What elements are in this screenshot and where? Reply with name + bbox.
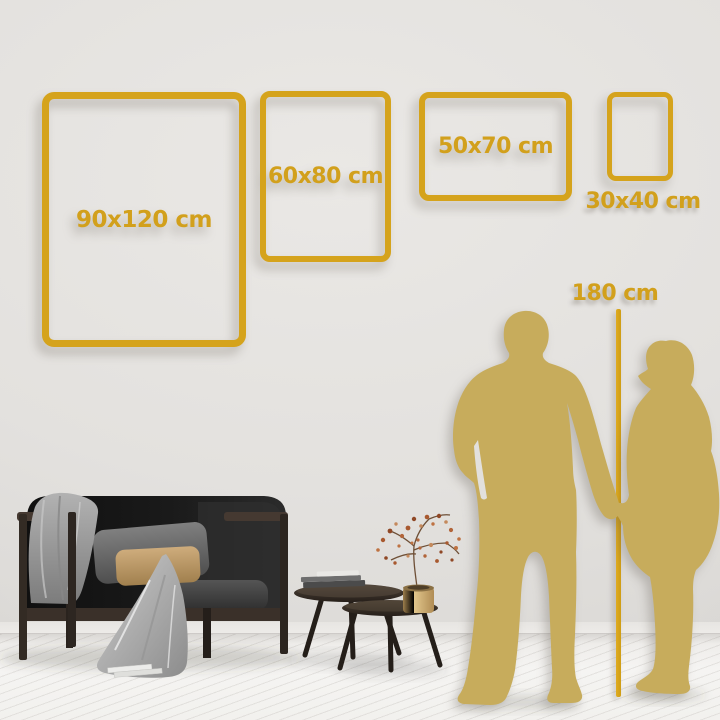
man-silhouette xyxy=(453,311,620,705)
poster-size-guide-scene: 90x120 cm 60x80 cm 50x70 cm 30x40 cm 180… xyxy=(0,0,720,720)
woman-silhouette xyxy=(615,340,720,694)
couple-silhouette xyxy=(0,0,720,720)
